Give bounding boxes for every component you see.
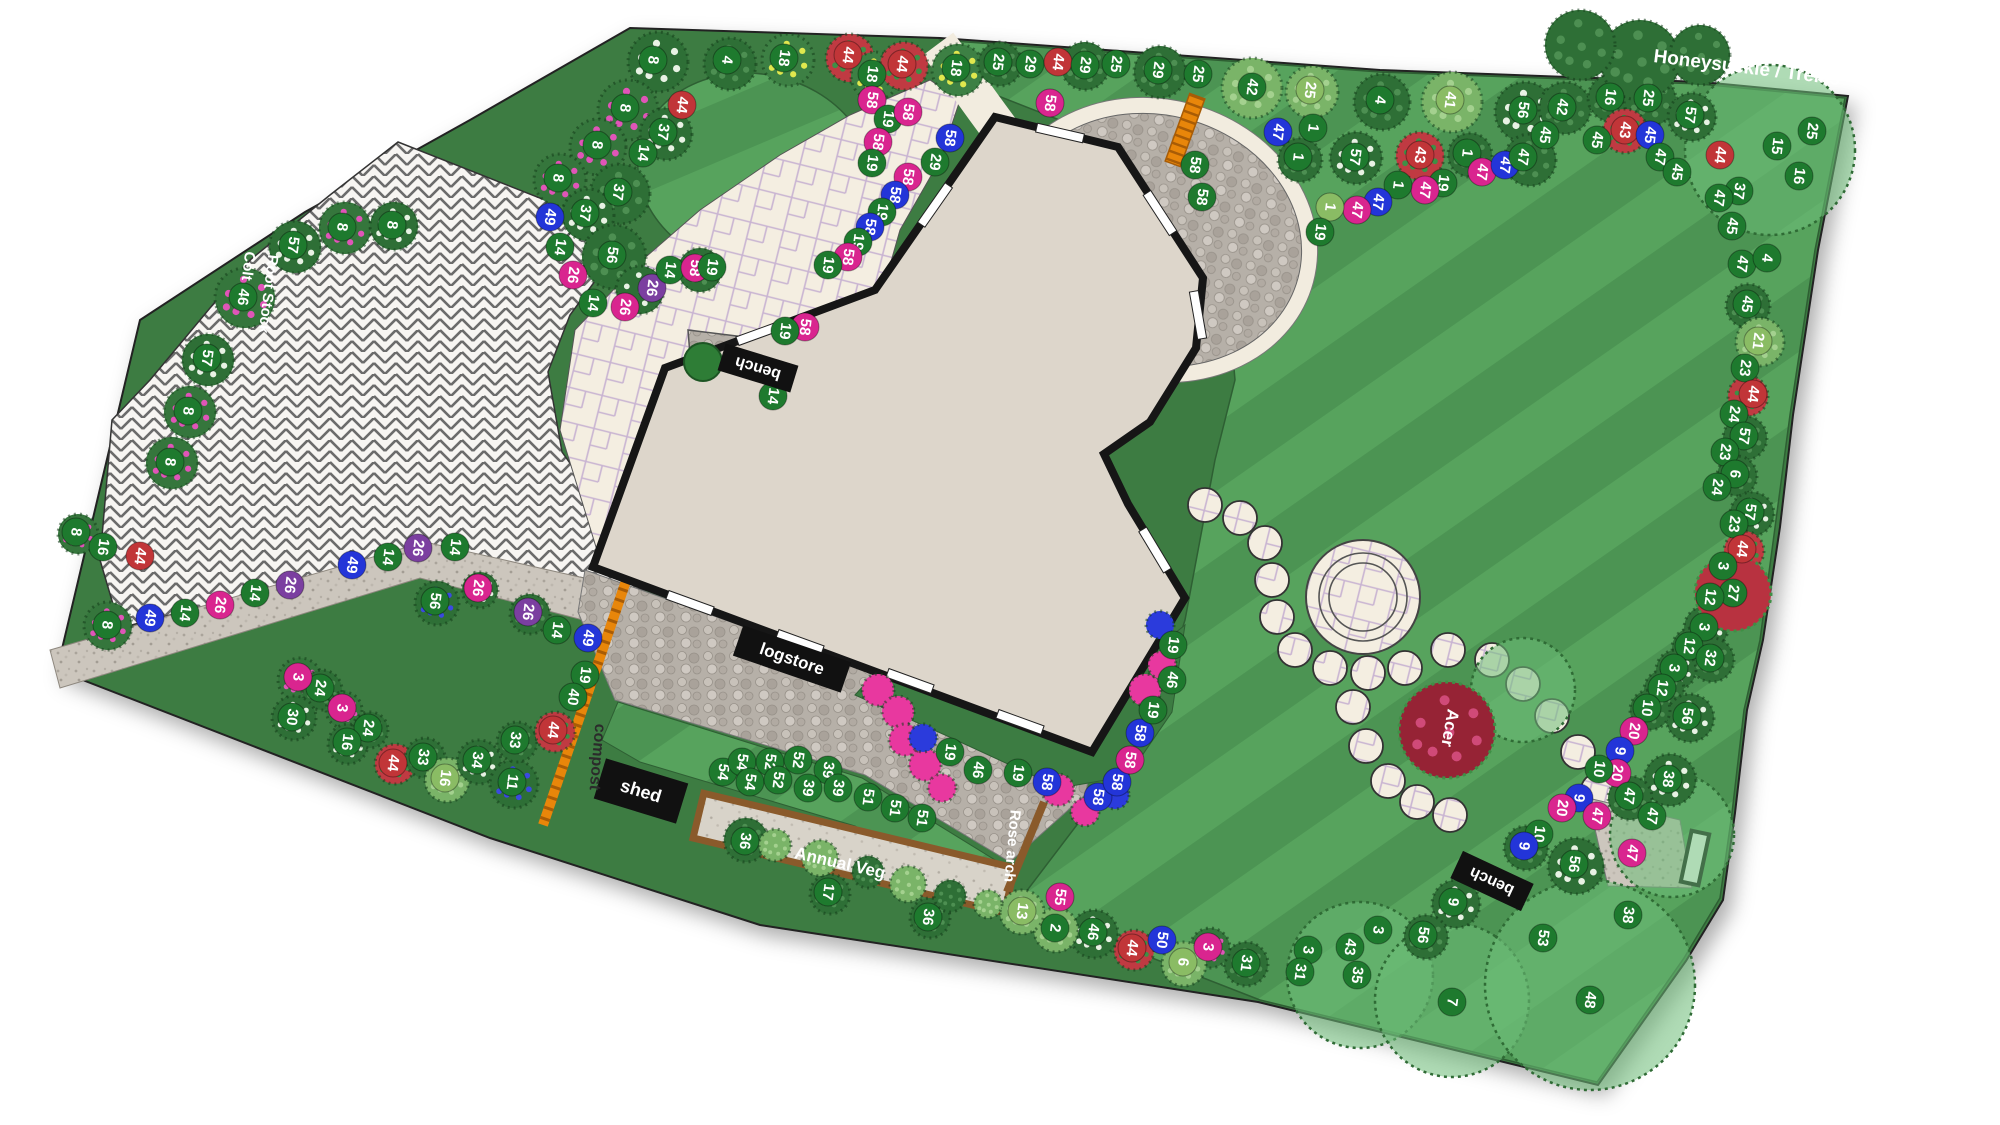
- small-tree: [684, 343, 722, 381]
- plant-marker: 36: [914, 903, 942, 931]
- plant-marker: 17: [814, 878, 842, 906]
- plant-marker-number: 16: [1790, 167, 1809, 186]
- plant-marker: 43: [1611, 116, 1639, 144]
- shrub-speckle: [601, 218, 607, 224]
- shrub-speckle: [1633, 30, 1643, 40]
- plant-marker: 26: [404, 534, 432, 562]
- plant-marker: 4: [713, 46, 741, 74]
- plant-marker: 44: [379, 749, 407, 777]
- shrub-body: [928, 774, 956, 802]
- plant-marker: 58: [1116, 746, 1144, 774]
- plant-marker-number: 45: [1668, 163, 1687, 182]
- shrub-speckle: [1610, 67, 1620, 77]
- plant-marker-number: 58: [899, 103, 918, 122]
- shrub-speckle: [938, 899, 942, 903]
- shrub: [928, 774, 956, 802]
- plant-marker: 18: [858, 60, 886, 88]
- plant-marker: 25: [984, 48, 1012, 76]
- shrub-speckle: [612, 150, 619, 157]
- plant-marker: 33: [409, 743, 437, 771]
- plant-marker: 26: [514, 598, 542, 626]
- plant-marker-number: 14: [378, 548, 397, 567]
- plant-marker-number: 19: [819, 256, 838, 275]
- plant-marker-number: 29: [1076, 56, 1095, 75]
- plant-marker: 12: [1696, 583, 1724, 611]
- shrub-speckle: [183, 451, 189, 457]
- plant-marker: 1: [1316, 193, 1344, 221]
- shrub-speckle: [1700, 707, 1706, 713]
- plant-marker-number: 19: [941, 743, 960, 762]
- plant-marker-number: 18: [775, 49, 794, 68]
- plant-marker-number: 26: [519, 603, 538, 622]
- shrub-speckle: [895, 887, 899, 891]
- plant-marker: 58: [1033, 768, 1061, 796]
- plant-marker: 46: [229, 283, 257, 311]
- plant-marker: 13: [1008, 897, 1036, 925]
- stepping-stone: [1313, 651, 1347, 685]
- shrub-speckle: [1162, 83, 1168, 89]
- plant-marker-number: 56: [426, 592, 445, 611]
- plant-marker: 19: [771, 317, 799, 345]
- shrub-speckle: [957, 888, 961, 892]
- plant-marker-number: 29: [1149, 61, 1168, 80]
- plant-marker: 44: [1118, 934, 1146, 962]
- shrub-speckle: [790, 71, 796, 77]
- plant-marker: 47: [1618, 839, 1646, 867]
- shrub-speckle: [1565, 57, 1573, 65]
- plant-marker: 42: [1548, 93, 1576, 121]
- plant-marker: 29: [1071, 51, 1099, 79]
- shrub-speckle: [1430, 107, 1437, 114]
- plant-marker: 19: [1004, 759, 1032, 787]
- shrub-speckle: [917, 886, 921, 890]
- plant-marker-number: 11: [503, 773, 522, 791]
- shrub-speckle: [1578, 878, 1585, 885]
- plant-marker-number: 18: [947, 59, 966, 78]
- plant-marker: 8: [156, 448, 184, 476]
- plant-marker-number: 23: [1716, 443, 1735, 462]
- shrub-speckle: [1384, 114, 1391, 121]
- shrub: [890, 866, 926, 902]
- shrub-speckle: [1396, 105, 1403, 112]
- shrub-speckle: [1652, 111, 1658, 117]
- plant-marker-number: 25: [1189, 65, 1208, 84]
- shrub-speckle: [1704, 119, 1710, 125]
- plant-marker: 49: [574, 624, 602, 652]
- shrub-speckle: [1394, 89, 1401, 96]
- stepping-stone: [1349, 729, 1383, 763]
- shrub-speckle: [610, 134, 617, 141]
- plant-marker: 9: [1510, 832, 1538, 860]
- plant-marker-number: 48: [1581, 991, 1600, 1010]
- plant-marker-number: 14: [660, 261, 679, 280]
- plant-marker-number: 49: [343, 556, 362, 575]
- plant-marker: 57: [1341, 143, 1369, 171]
- plant-marker: 55: [1046, 883, 1074, 911]
- plant-marker-number: 19: [1311, 223, 1330, 242]
- shrub-speckle: [1337, 163, 1343, 169]
- plant-marker: 44: [888, 50, 916, 78]
- plant-marker-number: 41: [1441, 91, 1460, 110]
- shrub-speckle: [1595, 29, 1603, 37]
- plant-marker: 47: [1509, 143, 1537, 171]
- plant-marker: 26: [276, 571, 304, 599]
- plant-marker: 14: [629, 139, 657, 167]
- plant-marker: 3: [284, 663, 312, 691]
- plant-marker-number: 25: [1639, 89, 1658, 108]
- acer-speckle: [1412, 739, 1422, 749]
- plant-marker: 45: [1718, 212, 1746, 240]
- plant-marker: 3: [1194, 933, 1222, 961]
- shrub-speckle: [909, 892, 913, 896]
- shrub-speckle: [1537, 850, 1542, 855]
- plant-marker-number: 14: [445, 538, 464, 557]
- plant-marker: 53: [1529, 924, 1557, 952]
- plant-marker-number: 37: [576, 204, 595, 223]
- plant-marker-number: 16: [436, 769, 455, 788]
- plant-marker: 50: [1148, 926, 1176, 954]
- plant-marker: 1: [1299, 114, 1327, 142]
- shrub-speckle: [896, 879, 900, 883]
- plant-marker-number: 19: [1144, 701, 1163, 720]
- plant-marker: 48: [1576, 986, 1604, 1014]
- shrub-speckle: [1723, 662, 1728, 667]
- plant-marker-number: 44: [838, 46, 857, 65]
- plant-marker-number: 47: [1514, 148, 1533, 167]
- plant-marker-number: 56: [1678, 707, 1697, 726]
- shrub-speckle: [201, 400, 207, 406]
- plant-marker: 39: [824, 774, 852, 802]
- shrub-speckle: [406, 228, 412, 234]
- shrub-speckle: [1468, 906, 1474, 912]
- plant-marker: 25: [1296, 76, 1324, 104]
- shrub-speckle: [210, 371, 216, 377]
- plant-marker-number: 45: [1738, 295, 1757, 314]
- plant-marker-number: 38: [1619, 906, 1638, 925]
- shrub-speckle: [628, 242, 636, 250]
- plant-marker-number: 20: [1553, 799, 1572, 818]
- plant-marker: 49: [338, 551, 366, 579]
- plant-marker: 37: [649, 118, 677, 146]
- shrub-speckle: [358, 231, 364, 237]
- plant-marker-number: 58: [863, 91, 882, 110]
- shrub-speckle: [1574, 19, 1582, 27]
- stepping-stone: [1388, 651, 1422, 685]
- plant-marker-number: 25: [1107, 55, 1126, 74]
- plant-marker: 20: [1548, 794, 1576, 822]
- shrub-speckle: [1265, 74, 1272, 81]
- plant-marker-number: 36: [736, 832, 755, 851]
- shrub-speckle: [977, 906, 981, 910]
- plant-marker-number: 20: [1625, 722, 1644, 741]
- plant-marker-number: 10: [1590, 760, 1609, 779]
- shrub-speckle: [1467, 105, 1474, 112]
- plant-marker: 2: [1041, 914, 1069, 942]
- plant-marker-number: 40: [564, 688, 583, 707]
- shrub-speckle: [985, 893, 989, 897]
- plant-marker-number: 44: [543, 721, 562, 740]
- plant-marker-number: 34: [467, 751, 486, 770]
- plant-marker: 16: [333, 728, 361, 756]
- plant-marker-number: 26: [616, 298, 635, 317]
- plant-marker-number: 12: [1680, 637, 1699, 656]
- plant-marker-number: 46: [1084, 923, 1103, 942]
- shrub-speckle: [772, 833, 776, 837]
- plant-marker-number: 37: [609, 183, 628, 202]
- plant-marker-number: 55: [1051, 888, 1070, 907]
- acer-speckle: [1416, 718, 1426, 728]
- plant-marker: 56: [1509, 96, 1537, 124]
- shrub-speckle: [630, 123, 637, 130]
- plant-marker-number: 19: [1164, 636, 1183, 655]
- plant-marker-number: 57: [198, 349, 217, 368]
- acer-speckle: [1440, 695, 1450, 705]
- shrub-speckle: [1623, 73, 1633, 83]
- plant-marker-number: 45: [1536, 126, 1555, 145]
- shrub-speckle: [960, 81, 966, 87]
- shrub-speckle: [609, 233, 617, 241]
- plant-marker-number: 45: [1723, 217, 1742, 236]
- plant-marker-number: 51: [913, 809, 932, 828]
- plant-marker-number: 26: [409, 539, 428, 558]
- shrub-speckle: [458, 782, 463, 787]
- shrub-speckle: [951, 903, 955, 907]
- plant-marker: 38: [1614, 901, 1642, 929]
- plant-marker: 8: [639, 46, 667, 74]
- plant-marker-number: 45: [1588, 131, 1607, 150]
- stepping-stone: [1351, 656, 1385, 690]
- shrub-speckle: [1369, 161, 1375, 167]
- shrub-speckle: [801, 63, 807, 69]
- plant-marker-number: 58: [1041, 94, 1060, 113]
- plant-marker: 42: [1238, 73, 1266, 101]
- plant-marker: 46: [1158, 666, 1186, 694]
- plant-marker: 14: [171, 599, 199, 627]
- plant-marker-number: 47: [1588, 807, 1607, 826]
- plant-marker: 35: [1343, 961, 1371, 989]
- plant-marker-number: 26: [211, 596, 230, 615]
- plant-marker: 23: [1720, 510, 1748, 538]
- plant-marker-number: 37: [654, 123, 673, 142]
- plant-marker: 57: [279, 231, 307, 259]
- stepping-stone: [1371, 764, 1405, 798]
- plant-marker-number: 23: [1725, 515, 1744, 534]
- plant-marker: 58: [1188, 183, 1216, 211]
- plant-marker: 3: [1709, 552, 1737, 580]
- shrub-speckle: [221, 363, 227, 369]
- plant-marker: 26: [611, 293, 639, 321]
- plant-marker: 36: [731, 827, 759, 855]
- shrub-speckle: [995, 905, 999, 909]
- shrub-speckle: [900, 890, 904, 894]
- shrub-speckle: [978, 900, 982, 904]
- shrub-speckle: [1361, 107, 1368, 114]
- plant-marker: 6: [1169, 948, 1197, 976]
- plant-marker-number: 58: [1038, 773, 1057, 792]
- shrub-speckle: [1683, 783, 1689, 789]
- shrub-speckle: [1314, 103, 1320, 109]
- plant-marker: 45: [1733, 290, 1761, 318]
- plant-marker-number: 26: [564, 266, 583, 285]
- plant-marker: 34: [463, 746, 491, 774]
- plant-marker: 9: [1439, 888, 1467, 916]
- plant-marker: 8: [328, 213, 356, 241]
- plant-marker: 44: [1044, 48, 1072, 76]
- shrub-speckle: [1503, 117, 1510, 124]
- acer-speckle: [1468, 708, 1478, 718]
- plant-marker-number: 19: [776, 322, 795, 341]
- shrub-speckle: [916, 876, 920, 880]
- plant-marker-number: 47: [1733, 255, 1752, 274]
- plant-marker-number: 36: [919, 908, 938, 927]
- shrub-speckle: [203, 415, 209, 421]
- plant-marker: 47: [1615, 782, 1643, 810]
- stepping-stone: [1255, 563, 1289, 597]
- shrub-speckle: [562, 191, 568, 197]
- shrub: [974, 890, 1002, 918]
- plant-marker: 19: [1139, 696, 1167, 724]
- plant-marker: 46: [964, 756, 992, 784]
- plant-marker-number: 46: [1163, 671, 1182, 690]
- plant-marker-number: 46: [969, 761, 988, 780]
- shrub-speckle: [1230, 93, 1237, 100]
- plant-marker: 18: [942, 54, 970, 82]
- shrub-speckle: [743, 67, 749, 73]
- plant-marker-number: 51: [859, 788, 878, 807]
- shrub: [1545, 10, 1615, 80]
- shrub-speckle: [1557, 36, 1565, 44]
- plant-marker: 51: [881, 794, 909, 822]
- plant-marker-number: 44: [1710, 146, 1729, 165]
- plant-marker: 19: [698, 253, 726, 281]
- shrub-speckle: [1325, 95, 1331, 101]
- plant-marker-number: 57: [1735, 427, 1754, 446]
- plant-marker-number: 49: [579, 629, 598, 648]
- shrub-speckle: [1173, 75, 1179, 81]
- plant-marker-number: 32: [1701, 649, 1720, 668]
- plant-marker-number: 16: [338, 733, 357, 752]
- plant-marker: 14: [579, 289, 607, 317]
- shrub-speckle: [1247, 66, 1254, 73]
- plant-marker-number: 27: [1724, 584, 1743, 603]
- plant-marker: 16: [431, 764, 459, 792]
- plant-marker-number: 47: [1643, 807, 1662, 826]
- plant-marker: 4: [1366, 86, 1394, 114]
- plant-marker-number: 56: [603, 246, 622, 265]
- shrub-speckle: [185, 466, 191, 472]
- shrub-speckle: [1590, 869, 1597, 876]
- shrub-speckle: [907, 883, 911, 887]
- shrub-speckle: [1598, 49, 1606, 57]
- shrub-speckle: [905, 871, 909, 875]
- shrub-speckle: [448, 605, 453, 610]
- shrub-speckle: [943, 901, 947, 905]
- plant-marker: 58: [894, 98, 922, 126]
- shrub-speckle: [1763, 516, 1768, 521]
- shrub-speckle: [673, 65, 680, 72]
- plant-marker: 56: [598, 241, 626, 269]
- shrub-speckle: [916, 68, 922, 74]
- plant-marker-number: 31: [1291, 963, 1310, 982]
- shrub-speckle: [189, 365, 195, 371]
- shrub-speckle: [1555, 871, 1562, 878]
- plant-marker: 19: [814, 251, 842, 279]
- plant-marker: 8: [174, 397, 202, 425]
- plant-marker-number: 44: [1732, 540, 1751, 559]
- shrub-speckle: [1106, 936, 1112, 942]
- plant-marker: 15: [1763, 132, 1791, 160]
- plant-marker-number: 44: [130, 547, 149, 566]
- stepping-stone: [1223, 501, 1257, 535]
- plant-marker: 44: [834, 41, 862, 69]
- plant-marker: 52: [784, 746, 812, 774]
- plant-marker: 25: [1634, 84, 1662, 112]
- plant-marker-number: 44: [892, 55, 911, 74]
- plant-marker: 11: [498, 768, 526, 796]
- shrub-speckle: [768, 850, 772, 854]
- plant-marker: 8: [62, 518, 90, 546]
- plant-marker: 47: [1264, 118, 1292, 146]
- plant-marker-number: 14: [245, 584, 264, 603]
- shrub-speckle: [1583, 60, 1591, 68]
- plant-marker-number: 58: [1186, 156, 1205, 175]
- plant-marker: 14: [656, 256, 684, 284]
- acer-speckle: [1452, 751, 1462, 761]
- shrub-speckle: [741, 52, 747, 58]
- plant-marker-number: 19: [863, 154, 882, 173]
- plant-marker: 51: [854, 783, 882, 811]
- plant-marker: 38: [1654, 765, 1682, 793]
- acer-speckle: [1428, 747, 1438, 757]
- plant-marker: 49: [136, 604, 164, 632]
- plant-marker-number: 42: [1553, 98, 1572, 117]
- plant-marker: 29: [1144, 56, 1172, 84]
- plant-marker: 31: [1232, 949, 1260, 977]
- plant-marker: 58: [1036, 89, 1064, 117]
- stepping-stone: [1260, 600, 1294, 634]
- plant-marker: 14: [441, 533, 469, 561]
- plant-marker: 14: [546, 233, 574, 261]
- plant-marker-number: 26: [469, 579, 488, 598]
- plant-marker-number: 45: [1641, 126, 1660, 145]
- shrub-speckle: [600, 159, 607, 166]
- plant-marker-number: 57: [284, 236, 303, 255]
- garden-plan: 8418441844182529442925292544888371437374…: [0, 0, 2000, 1125]
- shrub-speckle: [1437, 939, 1442, 944]
- plant-marker-number: 58: [1108, 773, 1127, 792]
- plant-marker: 8: [544, 164, 572, 192]
- plant-marker: 25: [1798, 117, 1826, 145]
- plant-marker-number: 43: [1411, 146, 1430, 165]
- plant-marker: 47: [1583, 802, 1611, 830]
- shrub-speckle: [799, 48, 805, 54]
- shrub-speckle: [1637, 57, 1647, 67]
- shrub-speckle: [668, 145, 674, 151]
- plant-marker: 40: [559, 683, 587, 711]
- plant-marker: 47: [1411, 176, 1439, 204]
- plant-marker: 3: [328, 694, 356, 722]
- plant-marker: 21: [1744, 327, 1772, 355]
- shrub-speckle: [526, 786, 532, 792]
- plant-marker-number: 10: [1638, 699, 1657, 718]
- plant-marker-number: 49: [141, 609, 160, 628]
- plant-marker-number: 52: [789, 751, 808, 770]
- plant-marker-number: 19: [1009, 764, 1028, 783]
- plant-marker-number: 15: [1768, 137, 1787, 156]
- plant-marker-number: 26: [281, 576, 300, 595]
- plant-marker: 45: [1531, 121, 1559, 149]
- plant-marker-number: 12: [1701, 588, 1720, 607]
